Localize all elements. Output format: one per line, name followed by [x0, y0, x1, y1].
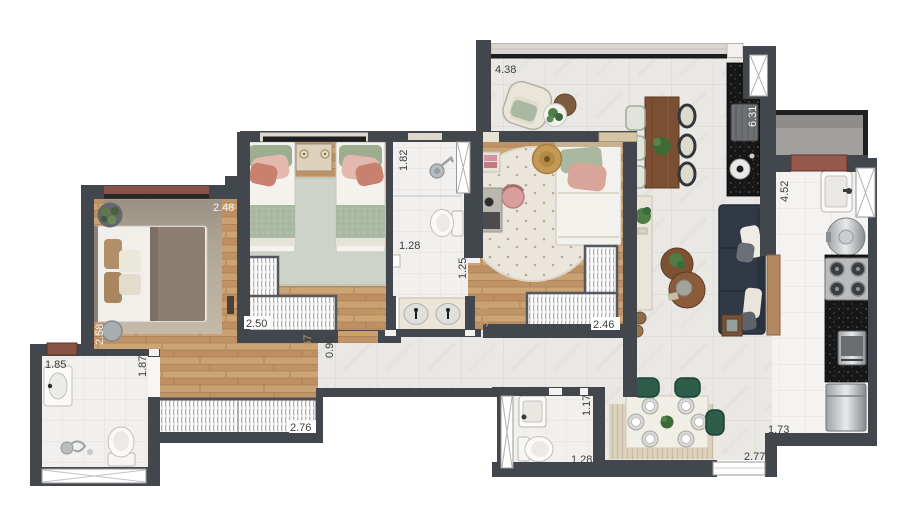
svg-text:4.38: 4.38: [495, 64, 516, 76]
svg-text:6.31: 6.31: [747, 106, 759, 127]
svg-text:1.87: 1.87: [137, 356, 149, 377]
svg-text:0.90: 0.90: [324, 337, 336, 358]
svg-text:1.67: 1.67: [302, 335, 314, 356]
svg-text:3.21: 3.21: [374, 305, 386, 326]
svg-text:2.50: 2.50: [246, 318, 267, 330]
svg-text:4.52: 4.52: [779, 181, 791, 202]
svg-text:1.85: 1.85: [45, 359, 66, 371]
svg-text:2.48: 2.48: [213, 202, 234, 214]
svg-text:2.46: 2.46: [593, 319, 614, 331]
svg-text:2.77: 2.77: [744, 451, 765, 463]
svg-text:1.28: 1.28: [399, 240, 420, 252]
svg-text:1.82: 1.82: [398, 150, 410, 171]
svg-text:1.28: 1.28: [571, 454, 592, 466]
svg-text:3.31: 3.31: [479, 306, 491, 327]
svg-text:1.17: 1.17: [581, 395, 593, 416]
svg-text:1.73: 1.73: [768, 424, 789, 436]
svg-text:2.58: 2.58: [94, 324, 106, 345]
svg-text:2.76: 2.76: [290, 422, 311, 434]
svg-text:1.25: 1.25: [457, 258, 469, 279]
